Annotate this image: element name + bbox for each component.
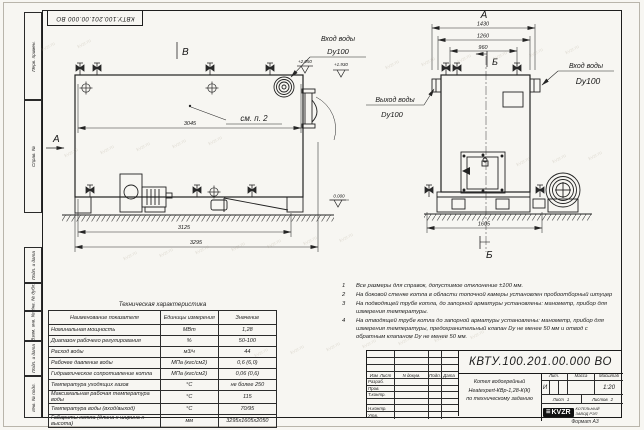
logo-caption: КОТЕЛЬНЫЙ ЗАВОД РЭП (576, 407, 600, 416)
view-a-title: А (480, 10, 488, 21)
tech-cell: Рабочее давление воды (49, 358, 161, 369)
elev-2050: +2.050 (298, 59, 312, 64)
dim-3045: 3045 (184, 121, 197, 127)
product-name-box: Котел водогрейный Heatexpert-КВр-1,28-К(… (458, 373, 542, 421)
burner-assembly (120, 174, 172, 212)
tech-cell: 70/95 (218, 404, 276, 415)
support-brace (224, 198, 288, 210)
tech-col-header: Значение (218, 311, 276, 325)
sign-row-label: Разраб. (367, 379, 395, 385)
manufacturer-logo-row: ☰KVZR КОТЕЛЬНЫЙ ЗАВОД РЭП (541, 404, 623, 420)
support-foot-left (75, 197, 91, 213)
signature-table: Изм Лист N докум. Подп. Дата Разраб. Про… (367, 351, 459, 416)
lit-header: Лит. (541, 373, 568, 380)
tech-cell: МПа (кгс/см2) (160, 358, 218, 369)
valve-icon (536, 185, 544, 197)
sign-row: Разраб. (367, 379, 458, 386)
tech-col-header: Единицы измерения (160, 311, 218, 325)
table-row: Диапазон рабочего регулирования%50-100 (49, 336, 277, 347)
outlet-pipe-detail (302, 89, 336, 140)
lug-icon (80, 82, 93, 95)
logo-bars-icon: ☰ (546, 410, 550, 415)
sheets-label: Листов (592, 397, 608, 402)
see-note-callout: см. п. 2 (240, 114, 268, 123)
tech-cell: °С (160, 391, 218, 404)
note-item: 3 На подводящей трубе котла, до запорной… (342, 301, 618, 317)
note-text: На подводящей трубе котла, до запорной а… (356, 301, 618, 317)
valve-icon (76, 63, 84, 75)
note-item: 1 Все размеры для справок, допустимое от… (342, 283, 618, 291)
sign-row-label: Утв. (367, 412, 395, 419)
valve-icon (206, 63, 214, 75)
scale-header: Масштаб (595, 373, 623, 380)
tech-cell: МПа (кгс/см2) (160, 369, 218, 380)
sign-row-label: Т.контр. (367, 392, 395, 398)
view-a-arrow-label: А (52, 134, 60, 145)
tech-cell: Габариты котла (длина х ширина х высота) (49, 415, 161, 428)
support-base (437, 192, 530, 212)
sign-row: Утв. (367, 412, 458, 419)
inlet-top-dn: Dy100 (327, 47, 350, 56)
view-b-arrow-label: В (182, 47, 189, 58)
tech-cell: Расход воды (49, 347, 161, 358)
sign-header-izm: Изм (370, 373, 378, 378)
dim-1430: 1430 (477, 22, 490, 28)
outlet-dn: Dy100 (381, 110, 404, 119)
note-text: Все размеры для справок, допустимое откл… (356, 283, 618, 291)
valve-icon (266, 63, 274, 75)
inlet-right-label: Вход воды (569, 62, 604, 70)
tech-cell: 44 (218, 347, 276, 358)
tech-header-row: Наименование показателя Единицы измерени… (49, 311, 277, 325)
logo-text: KVZR (551, 409, 570, 416)
elev-0000: 0.000 (333, 194, 345, 199)
tech-cell: Гидравлическое сопротивление котла (49, 369, 161, 380)
furnace-door (461, 152, 505, 193)
lug-icon (206, 82, 219, 95)
tech-cell: Номинальная мощность (49, 325, 161, 336)
inlet-right-dn: Dy100 (576, 76, 601, 86)
valve-icon (193, 185, 201, 197)
boiler-body-side (75, 75, 303, 197)
dim-1260: 1260 (477, 34, 490, 40)
valve-icon (425, 185, 433, 197)
valve-icon (248, 185, 256, 197)
doc-number: КВТУ.100.201.00.000 ВО (458, 351, 623, 374)
tech-cell: 50-100 (218, 336, 276, 347)
table-row: Максимальная рабочая температура воды°С1… (49, 391, 277, 404)
sign-row: Т.контр. (367, 392, 458, 399)
front-view-dimensions (427, 24, 542, 233)
elevation-mark-icon (333, 70, 349, 77)
support-foot-right (287, 197, 303, 212)
tech-cell: мм (160, 415, 218, 428)
title-block-right: Лит. Масса Масштаб И 1:20 Лист 1 Листов … (541, 373, 623, 416)
drawing-sheet: Перв. примен. Справ. № Подп. и дата Инв.… (0, 0, 644, 430)
sign-header-podp: Подп. (429, 372, 442, 378)
table-row: Температура уходящих газов°Сне более 250 (49, 380, 277, 391)
tech-cell: Температура воды (вход/выход) (49, 404, 161, 415)
sheet-value: 1 (567, 397, 569, 402)
sheets-value: 2 (611, 397, 613, 402)
format-label: Формат А3 (548, 419, 622, 425)
valve-icon (93, 63, 101, 75)
tech-table: Техническая характеристика Наименование … (48, 301, 277, 428)
sign-row-label (367, 399, 395, 405)
sheet-label: Лист (553, 397, 564, 402)
section-b-bottom: Б (486, 250, 493, 261)
note-number: 3 (342, 301, 356, 317)
elevation-mark-icon (330, 200, 346, 207)
note-text: На отводящей трубе котла до запорной арм… (356, 318, 618, 342)
elevation-mark-icon (297, 66, 313, 73)
sign-header-list: Лист (380, 373, 391, 378)
title-block: Изм Лист N докум. Подп. Дата Разраб. Про… (366, 350, 622, 418)
product-name-line: Котел водогрейный (458, 378, 541, 387)
mass-value (568, 381, 595, 394)
notes: 1 Все размеры для справок, допустимое от… (342, 283, 618, 343)
elev-1930: +1.930 (334, 62, 348, 67)
outlet-label: Выход воды (375, 96, 415, 104)
scale-value: 1:20 (595, 381, 623, 394)
table-row: Температура воды (вход/выход)°С70/95 (49, 404, 277, 415)
valve-icon (86, 185, 94, 197)
note-item: 4 На отводящей трубе котла до запорной а… (342, 318, 618, 342)
note-number: 2 (342, 292, 356, 300)
table-row: Рабочее давление водыМПа (кгс/см2)0,6 (6… (49, 358, 277, 369)
sign-header-ndocum: N докум. (395, 372, 429, 378)
note-number: 1 (342, 283, 356, 291)
inlet-flange-right (530, 79, 540, 92)
inlet-flange (274, 77, 294, 97)
table-row: Номинальная мощностьМВт1,28 (49, 325, 277, 336)
ground-hatch (424, 215, 592, 221)
inspection-hatch (503, 92, 523, 107)
tech-cell: 0,6 (6,0) (218, 358, 276, 369)
dim-1605: 1605 (478, 222, 491, 228)
dim-3295: 3295 (190, 240, 203, 246)
valve-icon (453, 63, 461, 75)
dim-960: 960 (478, 45, 488, 51)
front-view (424, 56, 592, 252)
tech-cell: 3295х1605х2050 (218, 415, 276, 428)
sign-row-label: Н.контр. (367, 405, 395, 411)
tech-cell: °С (160, 380, 218, 391)
sign-row (367, 399, 458, 406)
tech-cell: Температура уходящих газов (49, 380, 161, 391)
sign-header-data: Дата (442, 372, 456, 378)
inlet-top-label: Вход воды (321, 35, 356, 43)
sign-row: Пров. (367, 386, 458, 393)
tech-cell: °С (160, 404, 218, 415)
note-number: 4 (342, 318, 356, 342)
sign-row: Н.контр. (367, 405, 458, 412)
table-row: Расход водым3/ч44 (49, 347, 277, 358)
ground-hatch (62, 216, 334, 222)
side-view (62, 63, 336, 222)
tech-col-header: Наименование показателя (49, 311, 161, 325)
tech-cell: 115 (218, 391, 276, 404)
door-handle (462, 167, 470, 175)
mass-header: Масса (568, 373, 595, 380)
tech-cell: м3/ч (160, 347, 218, 358)
valve-icon (442, 63, 450, 75)
tech-cell: Максимальная рабочая температура воды (49, 391, 161, 404)
note-text: На боковой стенке котла в области топочн… (356, 292, 618, 300)
tech-cell: МВт (160, 325, 218, 336)
logo-caption-line: ЗАВОД РЭП (576, 412, 600, 417)
sign-header-row: Изм Лист N докум. Подп. Дата (367, 372, 458, 379)
note-item: 2 На боковой стенке котла в области топо… (342, 292, 618, 300)
boiler-body-front (441, 75, 530, 192)
sight-glass (211, 200, 227, 210)
tech-cell: не более 250 (218, 380, 276, 391)
section-b-top: Б (492, 57, 498, 67)
kvzr-logo: ☰KVZR (543, 408, 574, 417)
tech-cell: 1,28 (218, 325, 276, 336)
table-row: Гидравлическое сопротивление котлаМПа (к… (49, 369, 277, 380)
tech-cell: 0,06 (0,6) (218, 369, 276, 380)
product-name-line: по техническому заданию (458, 395, 541, 404)
table-row: Габариты котла (длина х ширина х высота)… (49, 415, 277, 428)
product-name-line: Heatexpert-КВр-1,28-К(К) (458, 387, 541, 396)
tech-cell: Диапазон рабочего регулирования (49, 336, 161, 347)
lit-value: И (541, 381, 550, 394)
tech-cell: % (160, 336, 218, 347)
sign-row-label: Пров. (367, 386, 395, 392)
tech-table-title: Техническая характеристика (48, 301, 277, 308)
dim-3125: 3125 (178, 225, 191, 231)
blower-fan (546, 173, 580, 212)
